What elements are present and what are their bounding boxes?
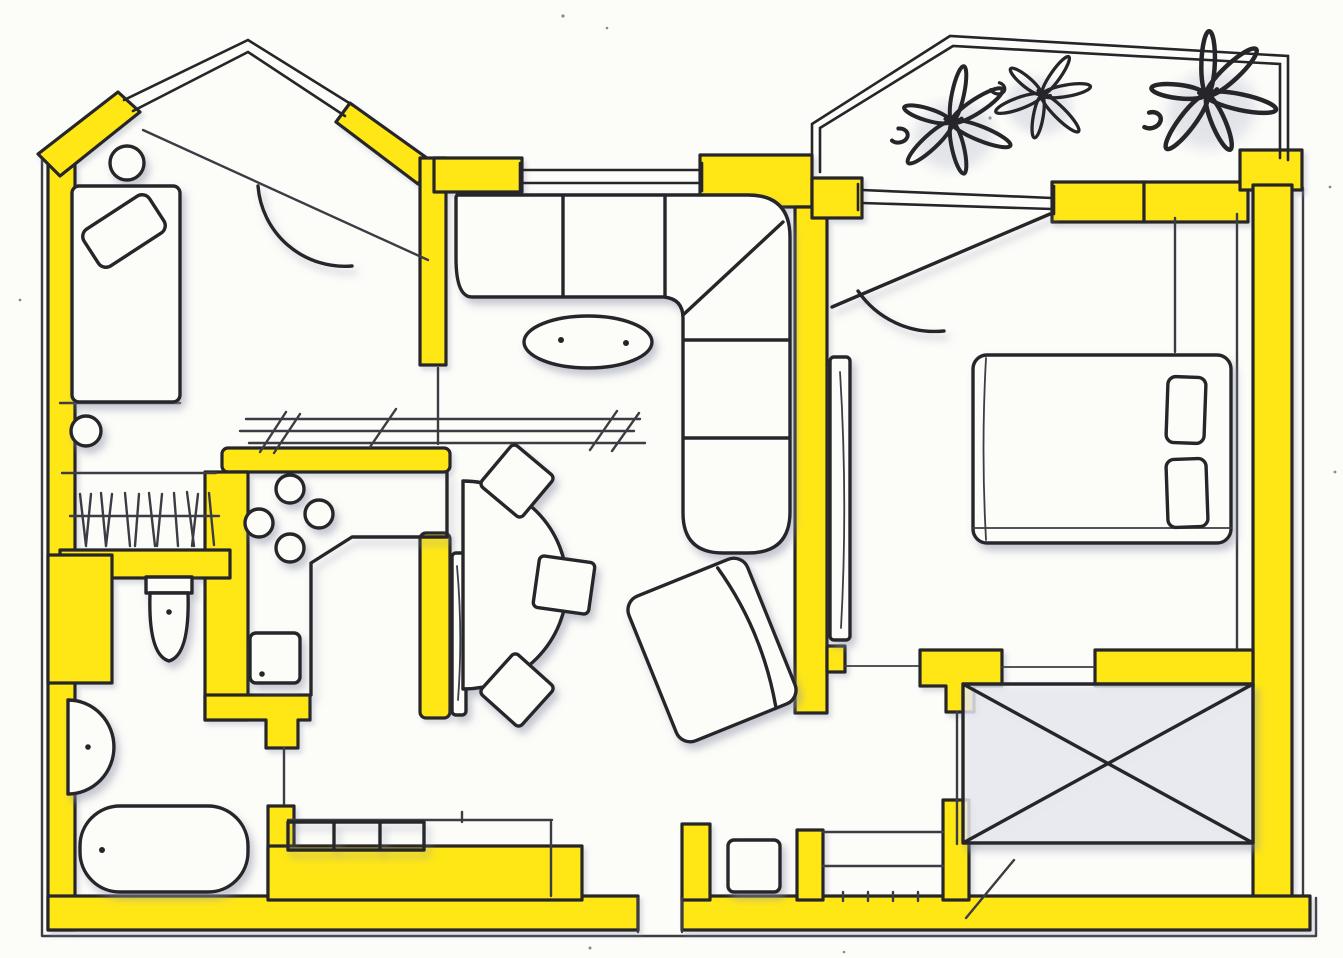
washbasin-dot (85, 744, 91, 750)
wall-bottom-right (682, 896, 1310, 930)
wall-kitchen-top (222, 448, 450, 472)
oval-coffee-table (524, 316, 652, 368)
kitchen-furniture (245, 473, 447, 695)
living-room-window-lines (520, 163, 702, 191)
bedroom-balcony-window-lines (858, 184, 1054, 214)
scanned-floorplan-sheet (0, 0, 1343, 958)
bedroom-door-leaf (832, 214, 1050, 307)
wall-entry-stub (682, 824, 710, 900)
dining-chair-right (533, 555, 596, 614)
storage-x-room (963, 684, 1253, 843)
toilet-dot (166, 609, 172, 615)
wall-shoeshelf-stub-left (797, 830, 823, 900)
wall-bedroom-bottom-right (1095, 650, 1253, 686)
wall-living-window-pier-left (434, 158, 522, 192)
wall-middle-notch (827, 646, 845, 672)
hanger-strokes (80, 492, 214, 546)
stove-burner-4 (276, 534, 304, 562)
kitchen-sink (250, 633, 300, 683)
dining-furniture (452, 443, 595, 728)
wall-right-outer (1253, 185, 1292, 902)
stool-circle-bottom (71, 416, 101, 446)
floorplan-svg (0, 0, 1343, 958)
entry-stool-square (728, 840, 780, 892)
entry-gap-edges (638, 898, 682, 932)
stool-circle-top (110, 146, 144, 180)
bathtub (80, 806, 248, 892)
bathtub-dot (99, 847, 105, 853)
bay-window-lines (124, 40, 354, 116)
bedroom-wardrobe (830, 357, 850, 640)
wall-balcony-pier-middle (1052, 182, 1144, 222)
room-topleft-furniture (71, 146, 352, 446)
wall-bedroom-top-corner (812, 178, 862, 218)
bedroom-furniture (830, 214, 1231, 640)
sink-dot (259, 671, 265, 677)
door-swing-arc-topleft (258, 186, 352, 266)
shoe-shelf-lines (823, 832, 943, 901)
stove-burner-3 (245, 509, 273, 537)
stove-burner-2 (305, 500, 333, 528)
wall-cabinet-chunk (268, 846, 582, 900)
stove-burner-1 (276, 475, 304, 503)
bed-pillow-2 (1166, 458, 1208, 527)
wall-bathroom-left-chunk (48, 555, 112, 683)
washbasin (68, 700, 114, 794)
table-dot-1 (558, 337, 564, 343)
wall-middle-vertical (795, 207, 827, 713)
toilet-cistern (146, 577, 192, 593)
wall-dining-bar (420, 533, 450, 718)
armchair (623, 554, 800, 747)
wall-kitchen-bottom-tstub (205, 695, 310, 748)
wall-balcony-pier-right (1144, 182, 1248, 222)
bed-pillow-1 (1166, 376, 1206, 443)
toilet-bowl (150, 593, 188, 661)
bedroom-door-arc (858, 291, 944, 331)
table-dot-2 (623, 340, 629, 346)
